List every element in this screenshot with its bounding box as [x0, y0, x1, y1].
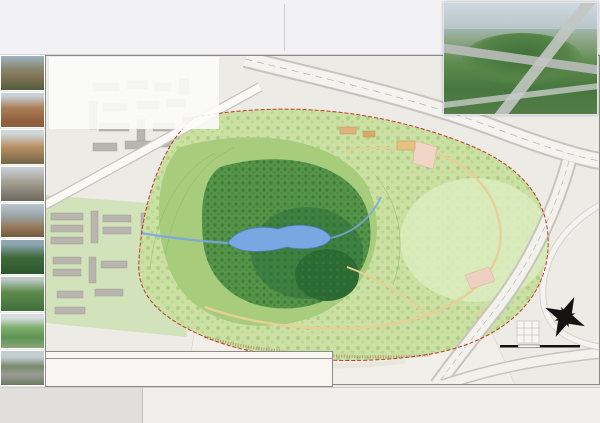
site-photo-hillside: [0, 276, 45, 312]
site-photo-bare-slope: [0, 129, 45, 165]
plan-sheet: [0, 0, 600, 423]
site-photo-strip: [0, 55, 45, 387]
site-photo-palm-park: [0, 313, 45, 349]
legend: [146, 389, 598, 423]
design-concept-block: [49, 57, 219, 129]
title-block: [10, 6, 280, 52]
drawing-title-block: [0, 388, 143, 423]
site-photo-rock-face: [0, 166, 45, 202]
planning-description: [288, 3, 438, 53]
site-photo-forest: [0, 239, 45, 275]
site-photo-quarry-pond: [0, 55, 45, 91]
site-photo-road: [0, 350, 45, 386]
legend-label: [146, 389, 166, 423]
economic-indicator-table: [45, 351, 333, 387]
site-photo-excavation: [0, 92, 45, 128]
divider: [284, 4, 285, 51]
site-photo-hill-city: [0, 203, 45, 239]
table-caption: [46, 352, 332, 359]
footer: [0, 387, 600, 423]
aerial-rendering-inset: [443, 2, 598, 115]
